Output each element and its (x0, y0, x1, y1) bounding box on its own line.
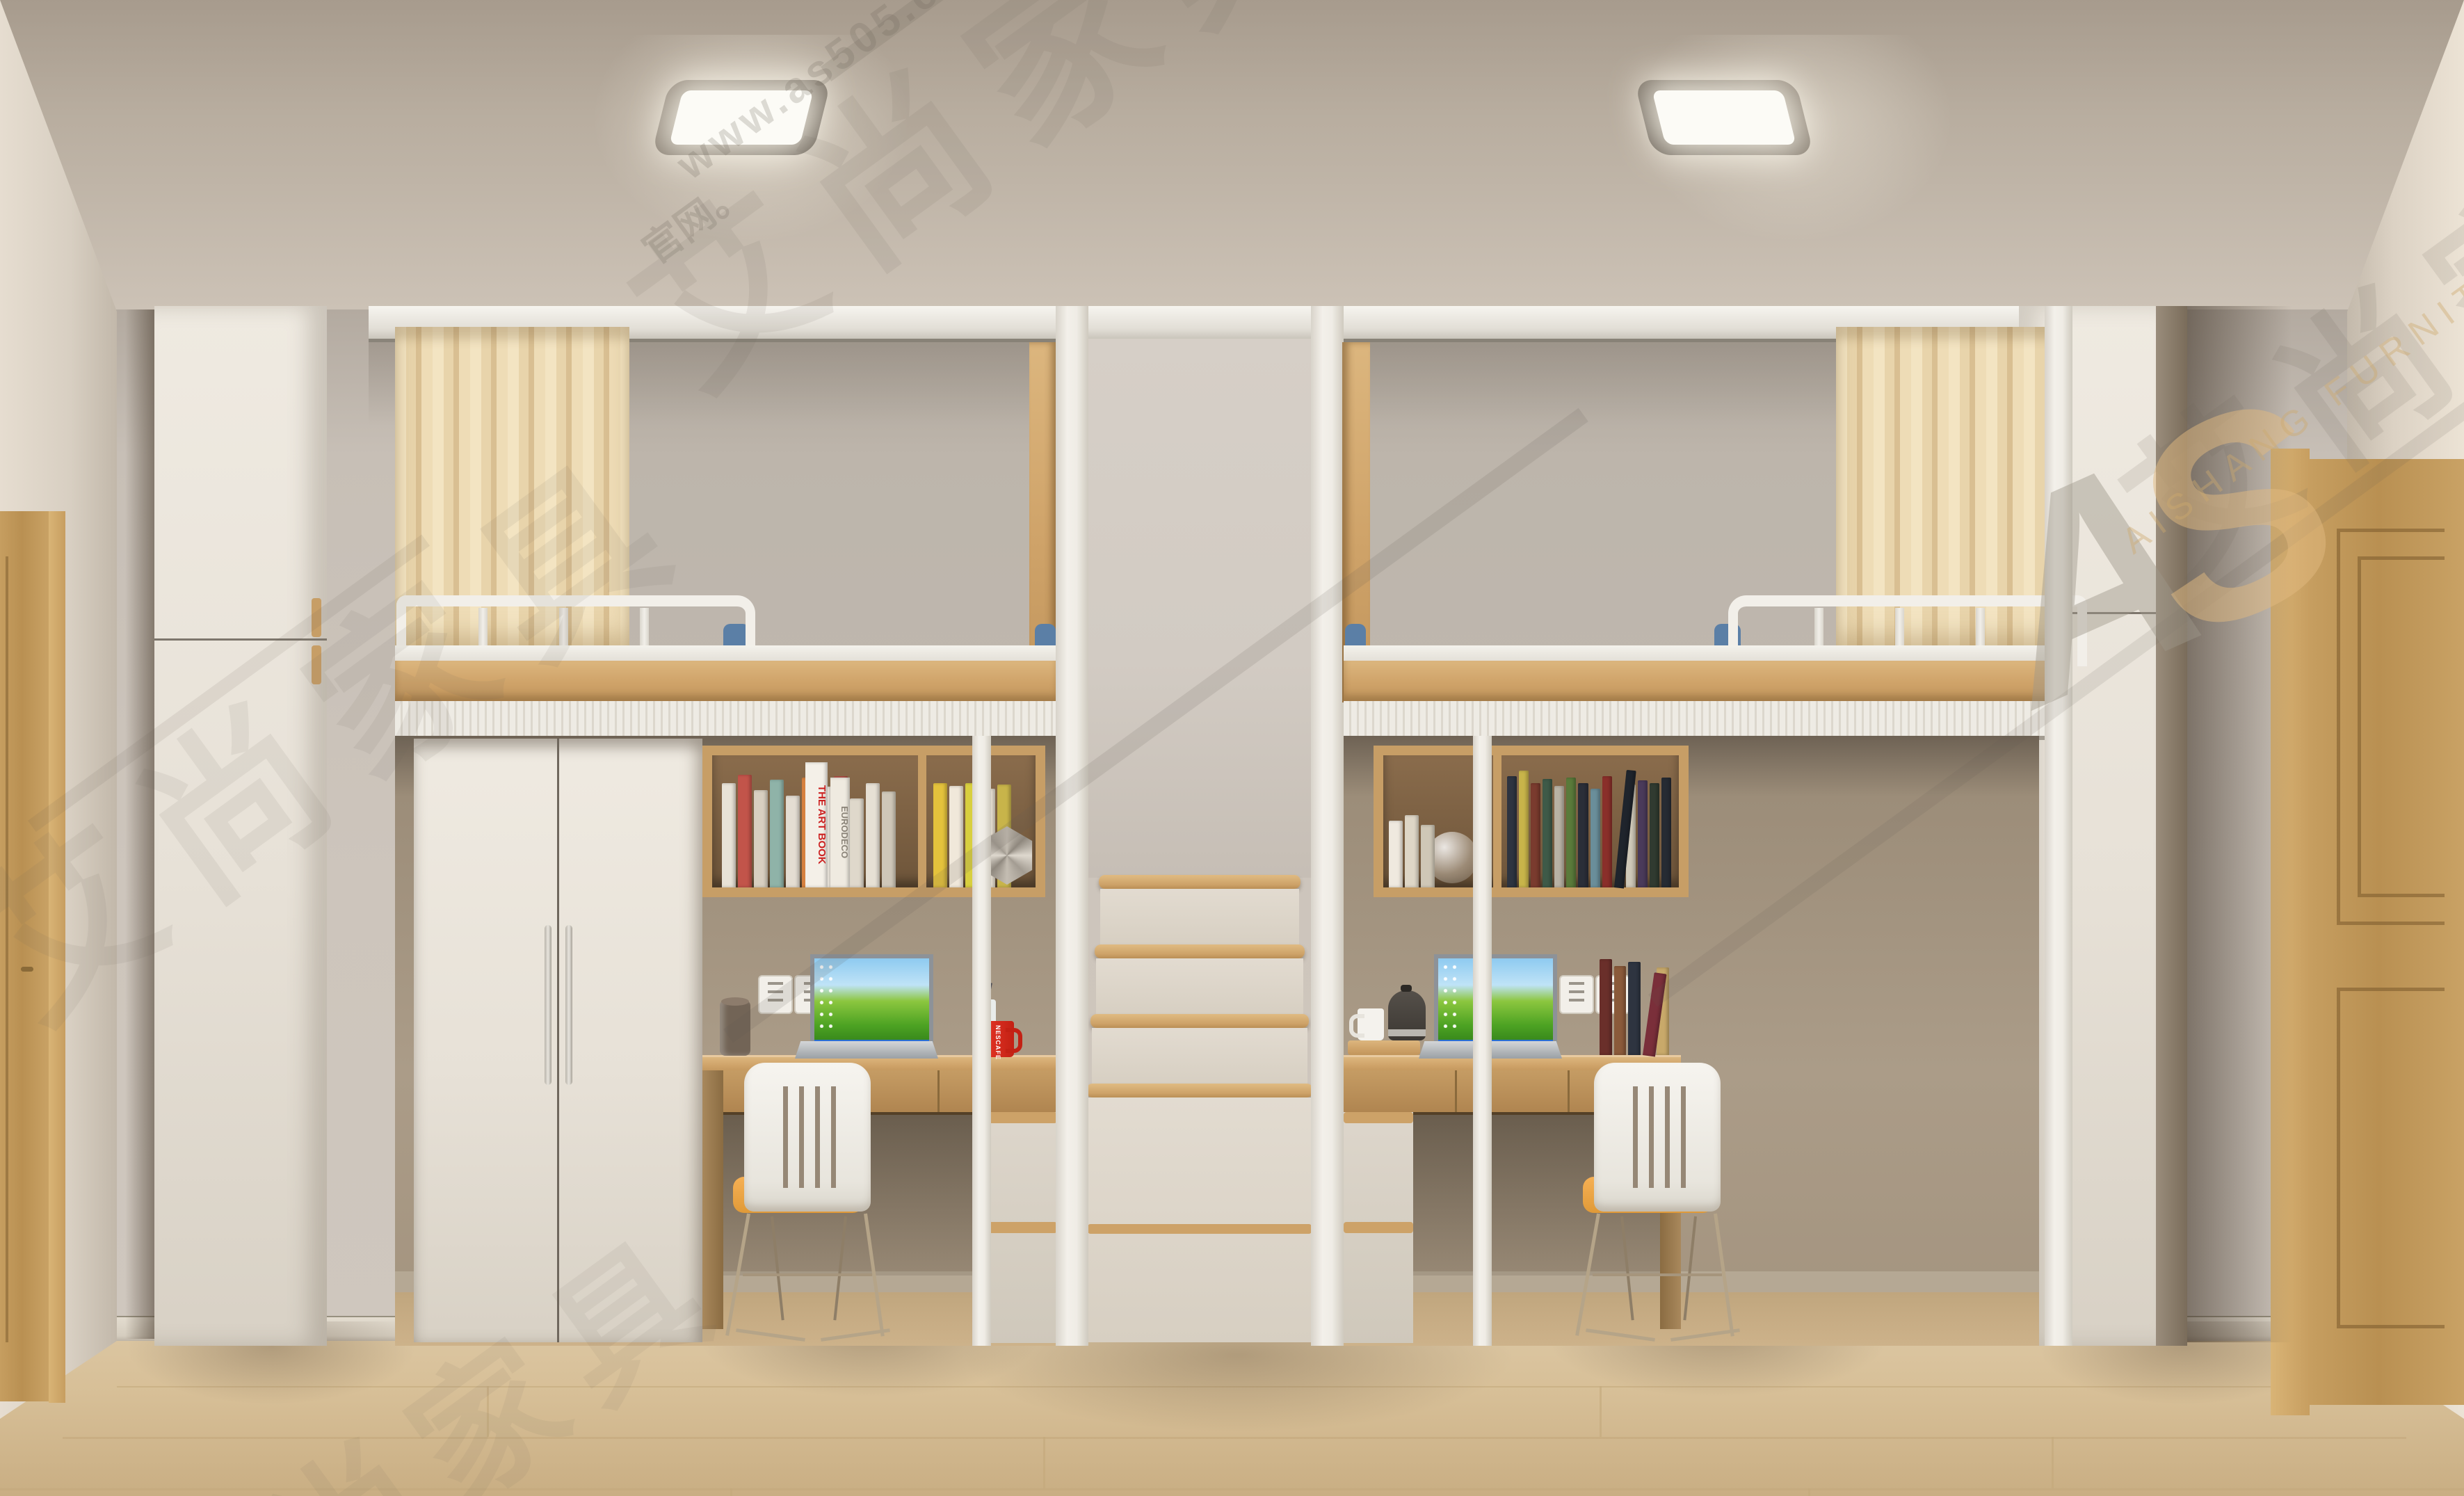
bed-front-leg (1473, 736, 1492, 1346)
book-spine (1600, 959, 1612, 1055)
desktop-icons (1441, 961, 1459, 1028)
door-handle (565, 925, 572, 1085)
book-spine (1591, 789, 1600, 887)
book-spine (738, 775, 752, 887)
stair-base-drawer (1088, 1097, 1312, 1342)
light-panel (669, 90, 813, 145)
book-spine (1389, 821, 1403, 887)
tall-wardrobe-left (154, 306, 327, 1346)
book-spine (866, 783, 880, 887)
stair-step-4 (1086, 1084, 1313, 1097)
book-spine (1543, 779, 1552, 887)
book-spine (882, 791, 896, 887)
stair-riser-2 (1096, 958, 1303, 1015)
mattress-edge (1344, 645, 2071, 661)
book-spine (1638, 780, 1648, 887)
stair-step-1 (1099, 875, 1301, 889)
book-spine (1421, 825, 1435, 887)
mug-handle (1349, 1014, 1364, 1038)
book-spine (1602, 776, 1612, 887)
book-spine (1405, 815, 1419, 887)
left-wardrobe-shadow (125, 309, 154, 1339)
dorm-room-render: THE ART BOOK EURODECO (0, 0, 2464, 1496)
bed-frame-band (1344, 701, 2071, 740)
book-spine (1519, 771, 1529, 887)
ceiling-light-left (652, 80, 832, 155)
stair-riser-3 (1092, 1028, 1307, 1085)
stair-step-3 (1090, 1014, 1309, 1028)
shelf-books (1389, 811, 1486, 887)
chair-legs (740, 1214, 879, 1346)
book-spine (770, 780, 784, 887)
shelf-divider (1493, 755, 1501, 887)
mug-handle (1006, 1028, 1022, 1053)
shelf-divider (918, 755, 926, 887)
book-spine (1661, 778, 1671, 887)
bed-fascia (395, 661, 1057, 701)
book-spine (1554, 786, 1564, 887)
bookshelf-left: THE ART BOOK EURODECO (702, 746, 1045, 897)
book-spine (1628, 962, 1641, 1055)
book-spine (1578, 783, 1588, 887)
book-spine (786, 796, 800, 887)
ladder-post-right (1311, 306, 1344, 1346)
stair-step-2 (1095, 944, 1305, 958)
ceiling-light-right (1634, 80, 1814, 155)
chair-back (1594, 1063, 1721, 1212)
center-recess-panel (1088, 339, 1311, 878)
ladder-post-left (1056, 306, 1088, 1346)
bookshelf-right (1374, 746, 1689, 897)
book-spine (1507, 776, 1517, 887)
book-spine (1566, 778, 1576, 887)
laptop-screen (1434, 954, 1557, 1047)
left-door-handle (21, 967, 33, 972)
chair-legs (1590, 1214, 1729, 1346)
desk-pedestal (1344, 1112, 1413, 1343)
book-spine-eurodeco: EURODECO (830, 778, 850, 887)
desk-riser-shelf (1348, 1040, 1420, 1055)
bed-frame-band (395, 701, 1057, 740)
chair-back-slots (772, 1086, 843, 1188)
bed-fascia (1344, 661, 2071, 701)
wardrobe-handle (312, 645, 321, 684)
door-gap (557, 739, 559, 1342)
mattress-edge (395, 645, 1057, 661)
white-mug (1358, 1008, 1384, 1040)
desk-side-panel (702, 1070, 723, 1329)
book-spine (1614, 966, 1627, 1055)
book-spine (1531, 783, 1540, 887)
book-spine-art-book: THE ART BOOK (805, 762, 828, 887)
book-spine (722, 783, 736, 887)
mug-label: NESCAFE (995, 1025, 1001, 1053)
stair-riser-1 (1100, 889, 1299, 946)
chair-back-slots (1622, 1086, 1693, 1188)
kettle (1388, 990, 1426, 1040)
shelf-books (1507, 768, 1671, 887)
book-spine (754, 790, 768, 887)
book-spine (1650, 783, 1659, 887)
desk-pedestal (988, 1112, 1057, 1343)
light-panel (1652, 90, 1796, 145)
chair-back (744, 1063, 871, 1212)
laptop-base (795, 1041, 938, 1059)
wall-outlet (1559, 975, 1594, 1014)
book-spine (850, 798, 864, 887)
under-bed-wardrobe-left (414, 739, 702, 1342)
door-handle (545, 925, 551, 1085)
bed-front-leg (972, 736, 991, 1346)
ceiling (0, 0, 2464, 320)
